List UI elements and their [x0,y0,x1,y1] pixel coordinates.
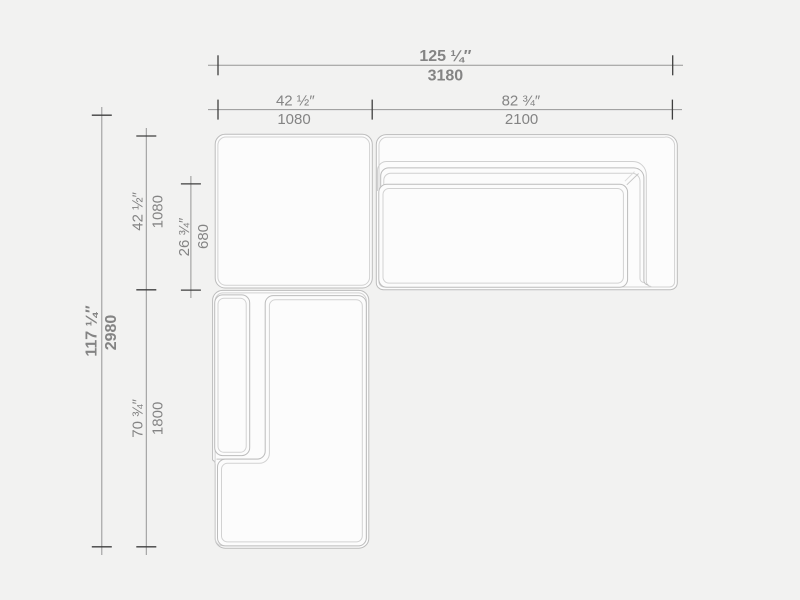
svg-text:2980: 2980 [103,315,120,351]
svg-text:1800: 1800 [150,402,167,435]
svg-text:42 ½″: 42 ½″ [276,92,315,109]
svg-text:680: 680 [195,224,212,249]
svg-text:2100: 2100 [505,111,538,128]
svg-text:3180: 3180 [428,68,464,85]
svg-text:1080: 1080 [277,111,310,128]
svg-text:42 ½″: 42 ½″ [130,191,147,230]
svg-text:70 ¾″: 70 ¾″ [130,398,147,437]
svg-text:82 ¾″: 82 ¾″ [502,92,541,109]
svg-text:117 ¼″: 117 ¼″ [83,305,100,357]
svg-text:125 ¼″: 125 ¼″ [419,48,471,65]
svg-text:1080: 1080 [150,195,167,228]
svg-text:26 ¾″: 26 ¾″ [176,217,193,256]
